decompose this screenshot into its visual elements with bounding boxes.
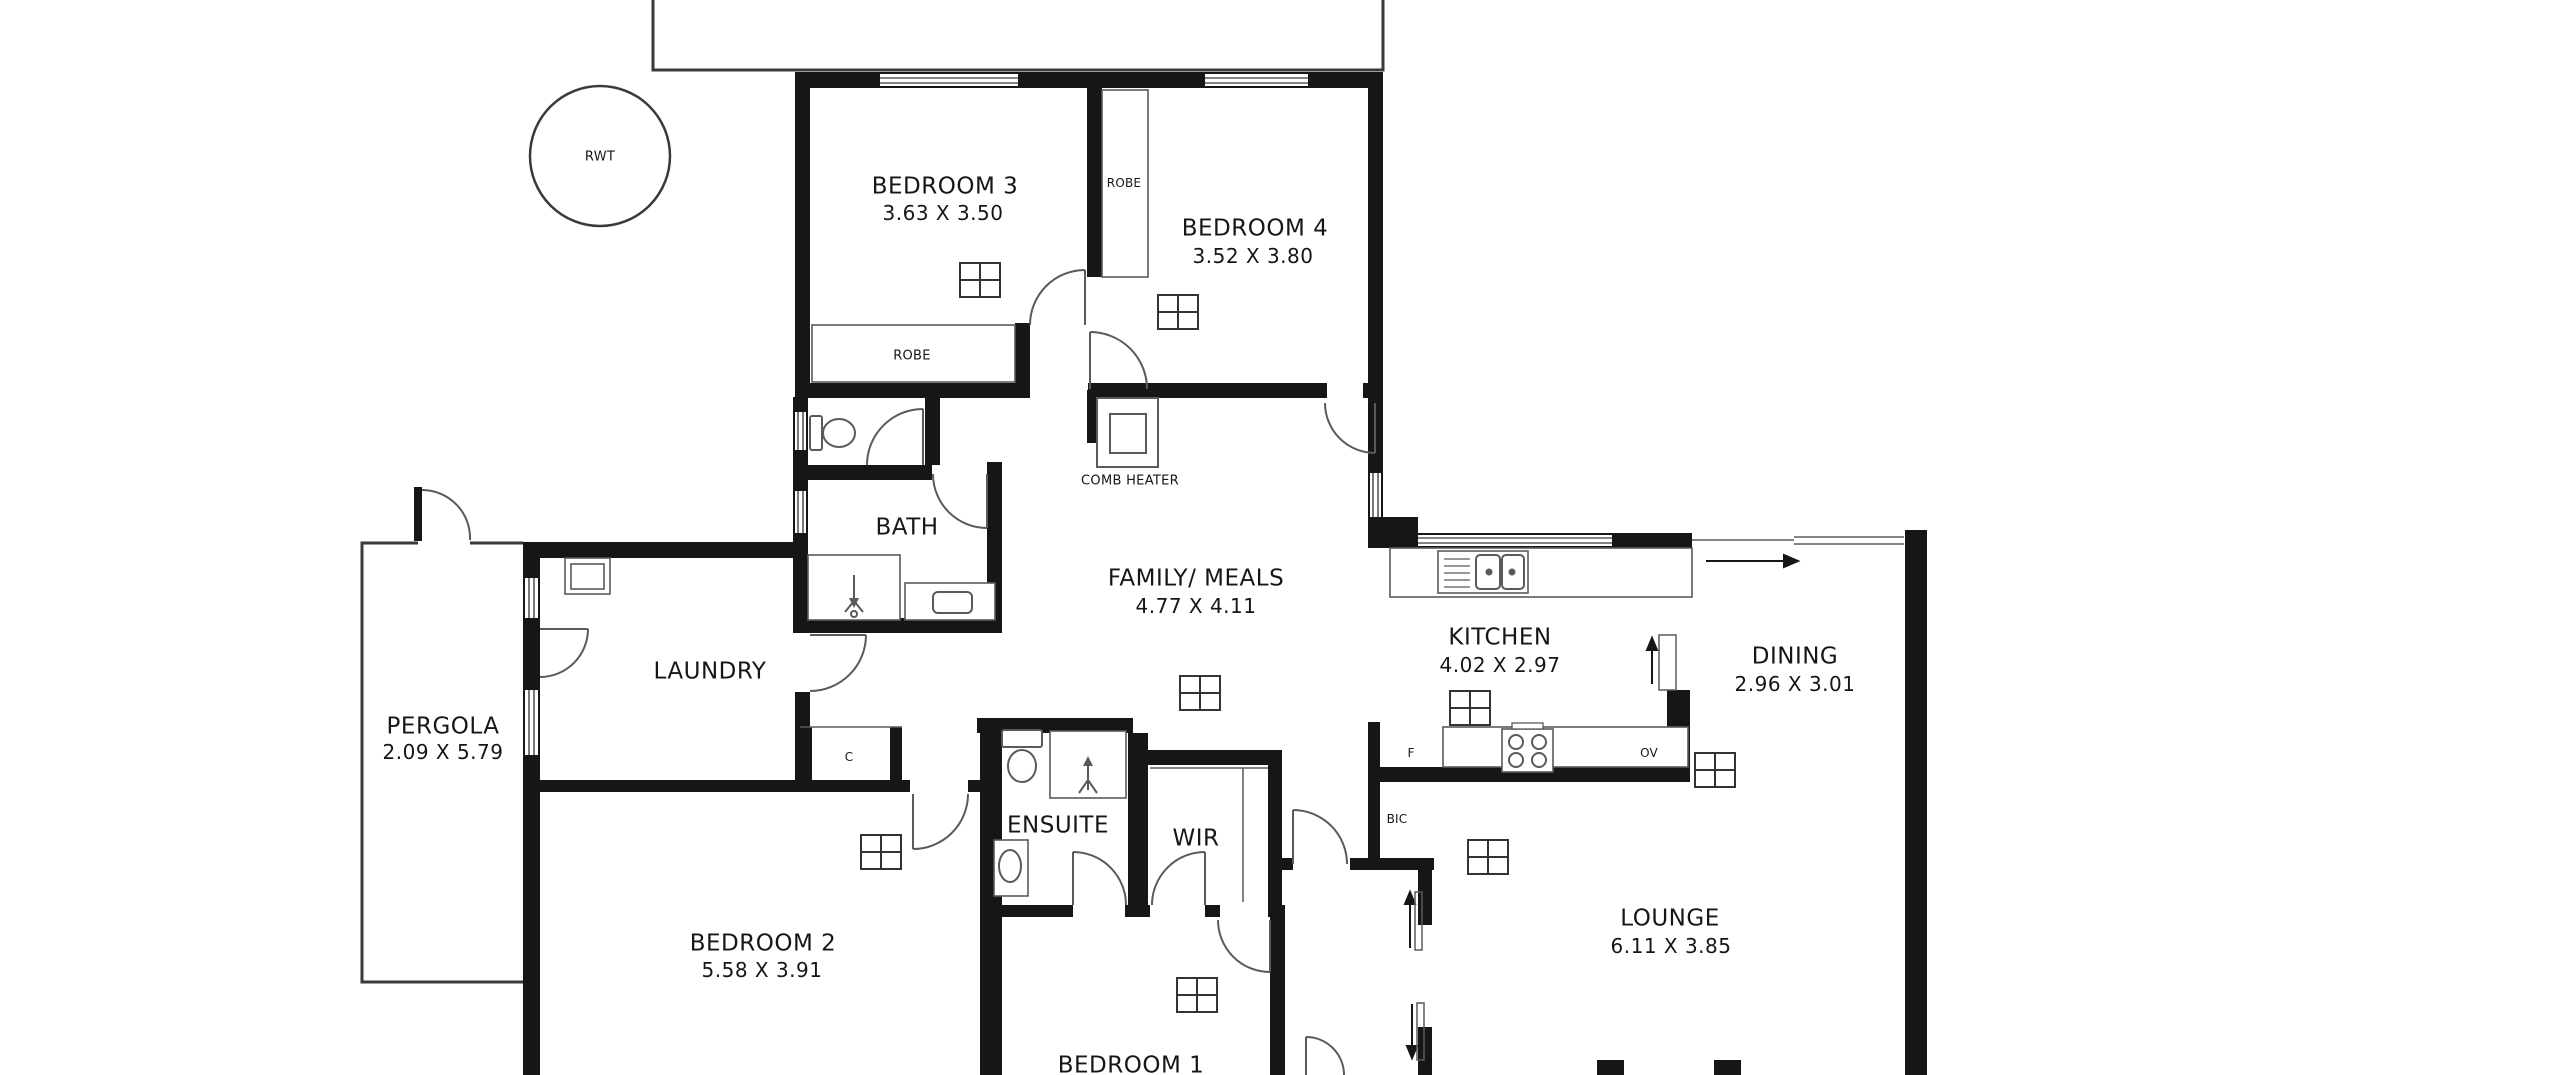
- entry-arrow-icon: [1706, 555, 1798, 567]
- laundry-trough-icon: [565, 558, 610, 594]
- robe-bed4-label: ROBE: [1107, 177, 1141, 189]
- room-dims-bedroom4: 3.52 X 3.80: [1193, 246, 1314, 266]
- pergola-entry-door: [422, 490, 470, 540]
- room-label-dining: DINING: [1752, 646, 1839, 669]
- room-dims-bedroom3: 3.63 X 3.50: [883, 203, 1004, 223]
- grid-symbol: [1468, 840, 1508, 874]
- hall-bottom-door: [1306, 1037, 1344, 1075]
- room-label-pergola: PERGOLA: [387, 716, 500, 739]
- room-dims-pergola: 2.09 X 5.79: [383, 742, 504, 762]
- comb-heater-label: COMB HEATER: [1081, 475, 1179, 488]
- comb-heater-icon: [1097, 398, 1158, 467]
- wc-toilet-icon: [810, 416, 855, 450]
- ensuite-shower-icon: [1050, 731, 1126, 798]
- grid-symbol: [1450, 691, 1490, 725]
- bath-shower-icon: [808, 555, 900, 620]
- grid-symbol: [1158, 295, 1198, 329]
- pergola-laundry-door: [540, 629, 588, 677]
- grid-symbol: [1177, 978, 1217, 1012]
- grid-symbol: [1695, 753, 1735, 787]
- grid-symbol: [861, 835, 901, 869]
- grid-symbol: [1180, 676, 1220, 710]
- room-dims-lounge: 6.11 X 3.85: [1611, 936, 1732, 956]
- room-label-family-meals: FAMILY/ MEALS: [1108, 568, 1284, 591]
- family-external-door: [1325, 403, 1375, 453]
- cupboard-label: C: [845, 751, 854, 763]
- oven-label: OV: [1640, 747, 1658, 759]
- room-label-lounge: LOUNGE: [1620, 908, 1720, 931]
- bedroom2-door: [913, 794, 968, 849]
- room-label-bedroom3: BEDROOM 3: [872, 176, 1019, 199]
- rwt-label: RWT: [585, 151, 615, 164]
- room-dims-family-meals: 4.77 X 4.11: [1136, 596, 1257, 616]
- wc-door: [867, 409, 923, 465]
- room-dims-bedroom2: 5.58 X 3.91: [702, 960, 823, 980]
- ensuite-basin-icon: [994, 840, 1028, 896]
- wir-door: [1152, 852, 1205, 905]
- room-label-bedroom4: BEDROOM 4: [1182, 218, 1329, 241]
- robe-bed3-label: ROBE: [893, 350, 931, 363]
- bath-vanity-icon: [905, 583, 995, 620]
- kitchen-slider-arrow-icon: [1647, 635, 1676, 690]
- floorplan-drawing: [0, 0, 2560, 1075]
- hall-lounge-door: [1293, 810, 1347, 864]
- bath-door: [933, 474, 987, 528]
- bedroom1-door: [1218, 920, 1270, 972]
- ensuite-toilet-icon: [1002, 730, 1042, 782]
- grid-symbol: [960, 263, 1000, 297]
- dining-window: [1692, 537, 1904, 544]
- laundry-hall-door: [810, 635, 866, 691]
- ensuite-door: [1073, 852, 1126, 905]
- room-label-ensuite: ENSUITE: [1007, 815, 1109, 838]
- room-label-laundry: LAUNDRY: [654, 661, 767, 684]
- fridge-label: F: [1407, 747, 1414, 759]
- garage-outline: [653, 0, 1383, 70]
- window-symbols: [525, 74, 1904, 755]
- cooktop-icon: [1502, 723, 1553, 772]
- bedroom4-door: [1090, 332, 1147, 389]
- bic-label: BIC: [1387, 813, 1408, 825]
- room-label-wir: WIR: [1172, 828, 1219, 851]
- room-dims-dining: 2.96 X 3.01: [1735, 674, 1856, 694]
- room-label-bedroom2: BEDROOM 2: [690, 933, 837, 956]
- room-dims-kitchen: 4.02 X 2.97: [1440, 655, 1561, 675]
- kitchen-bench-top: [1390, 548, 1692, 597]
- room-label-kitchen: KITCHEN: [1448, 627, 1551, 650]
- kitchen-sink-icon: [1438, 551, 1528, 593]
- room-label-bedroom1: BEDROOM 1: [1058, 1055, 1205, 1075]
- bedroom3-door: [1030, 270, 1085, 325]
- room-label-bath: BATH: [875, 517, 938, 540]
- floorplan-image: BEDROOM 3 3.63 X 3.50 BEDROOM 4 3.52 X 3…: [0, 0, 2560, 1075]
